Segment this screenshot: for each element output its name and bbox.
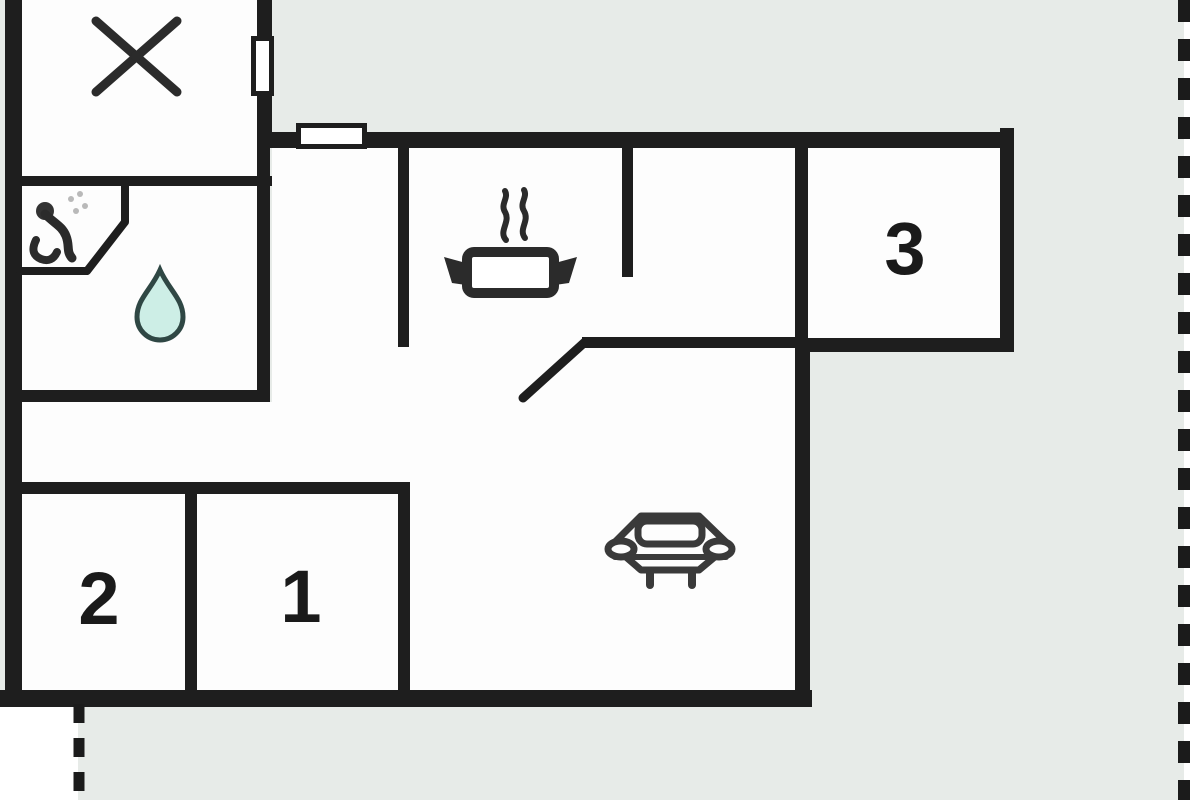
shower-icon [33, 191, 88, 260]
x-marker-icon [96, 21, 177, 92]
sofa-icon [608, 516, 732, 585]
room-label-2: 2 [54, 562, 144, 636]
room-label-1: 1 [256, 560, 346, 634]
door-swing-icon [523, 342, 585, 398]
floor-plan: 3 2 1 [0, 0, 1200, 800]
water-drop-icon [137, 270, 183, 340]
symbol-overlay [0, 0, 1200, 800]
cooking-pot-icon [444, 190, 577, 293]
room-label-3: 3 [860, 212, 950, 286]
